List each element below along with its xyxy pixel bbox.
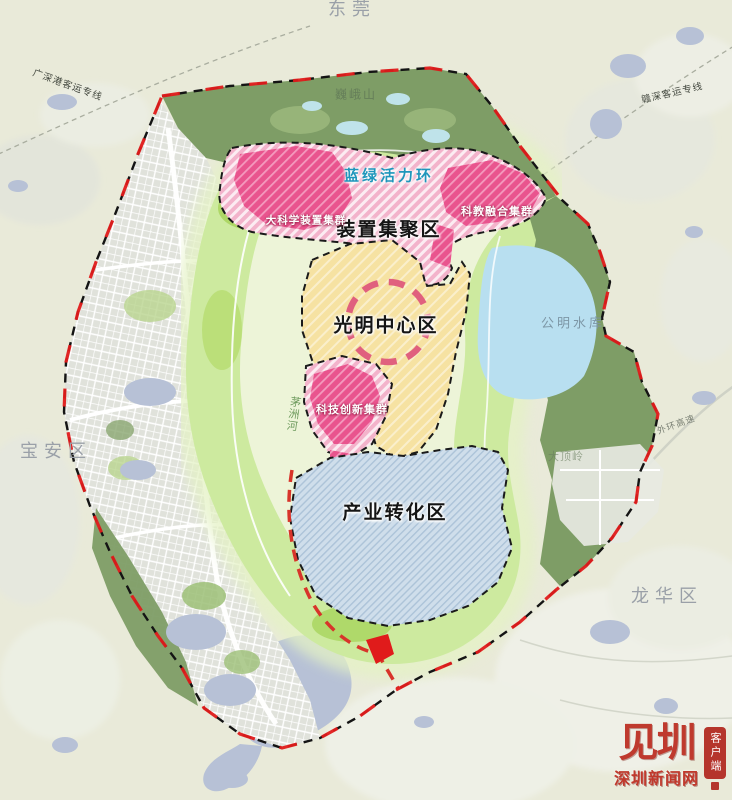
- seal-dot-icon: [711, 782, 719, 790]
- planning-map: 东莞 宝安区 龙华区 巍峨山 公明水库 大顶岭 茅洲河 蓝绿活力环 装置集聚区 …: [0, 0, 732, 800]
- client-seal: 客户端: [704, 727, 726, 790]
- site-name: 深圳新闻网: [614, 765, 699, 789]
- shenzhen-news-watermark: 见圳 深圳新闻网 客户端: [614, 723, 726, 790]
- map-canvas: [0, 0, 732, 800]
- news-logo-icon: 见圳: [618, 723, 694, 763]
- client-label: 客户端: [704, 727, 726, 779]
